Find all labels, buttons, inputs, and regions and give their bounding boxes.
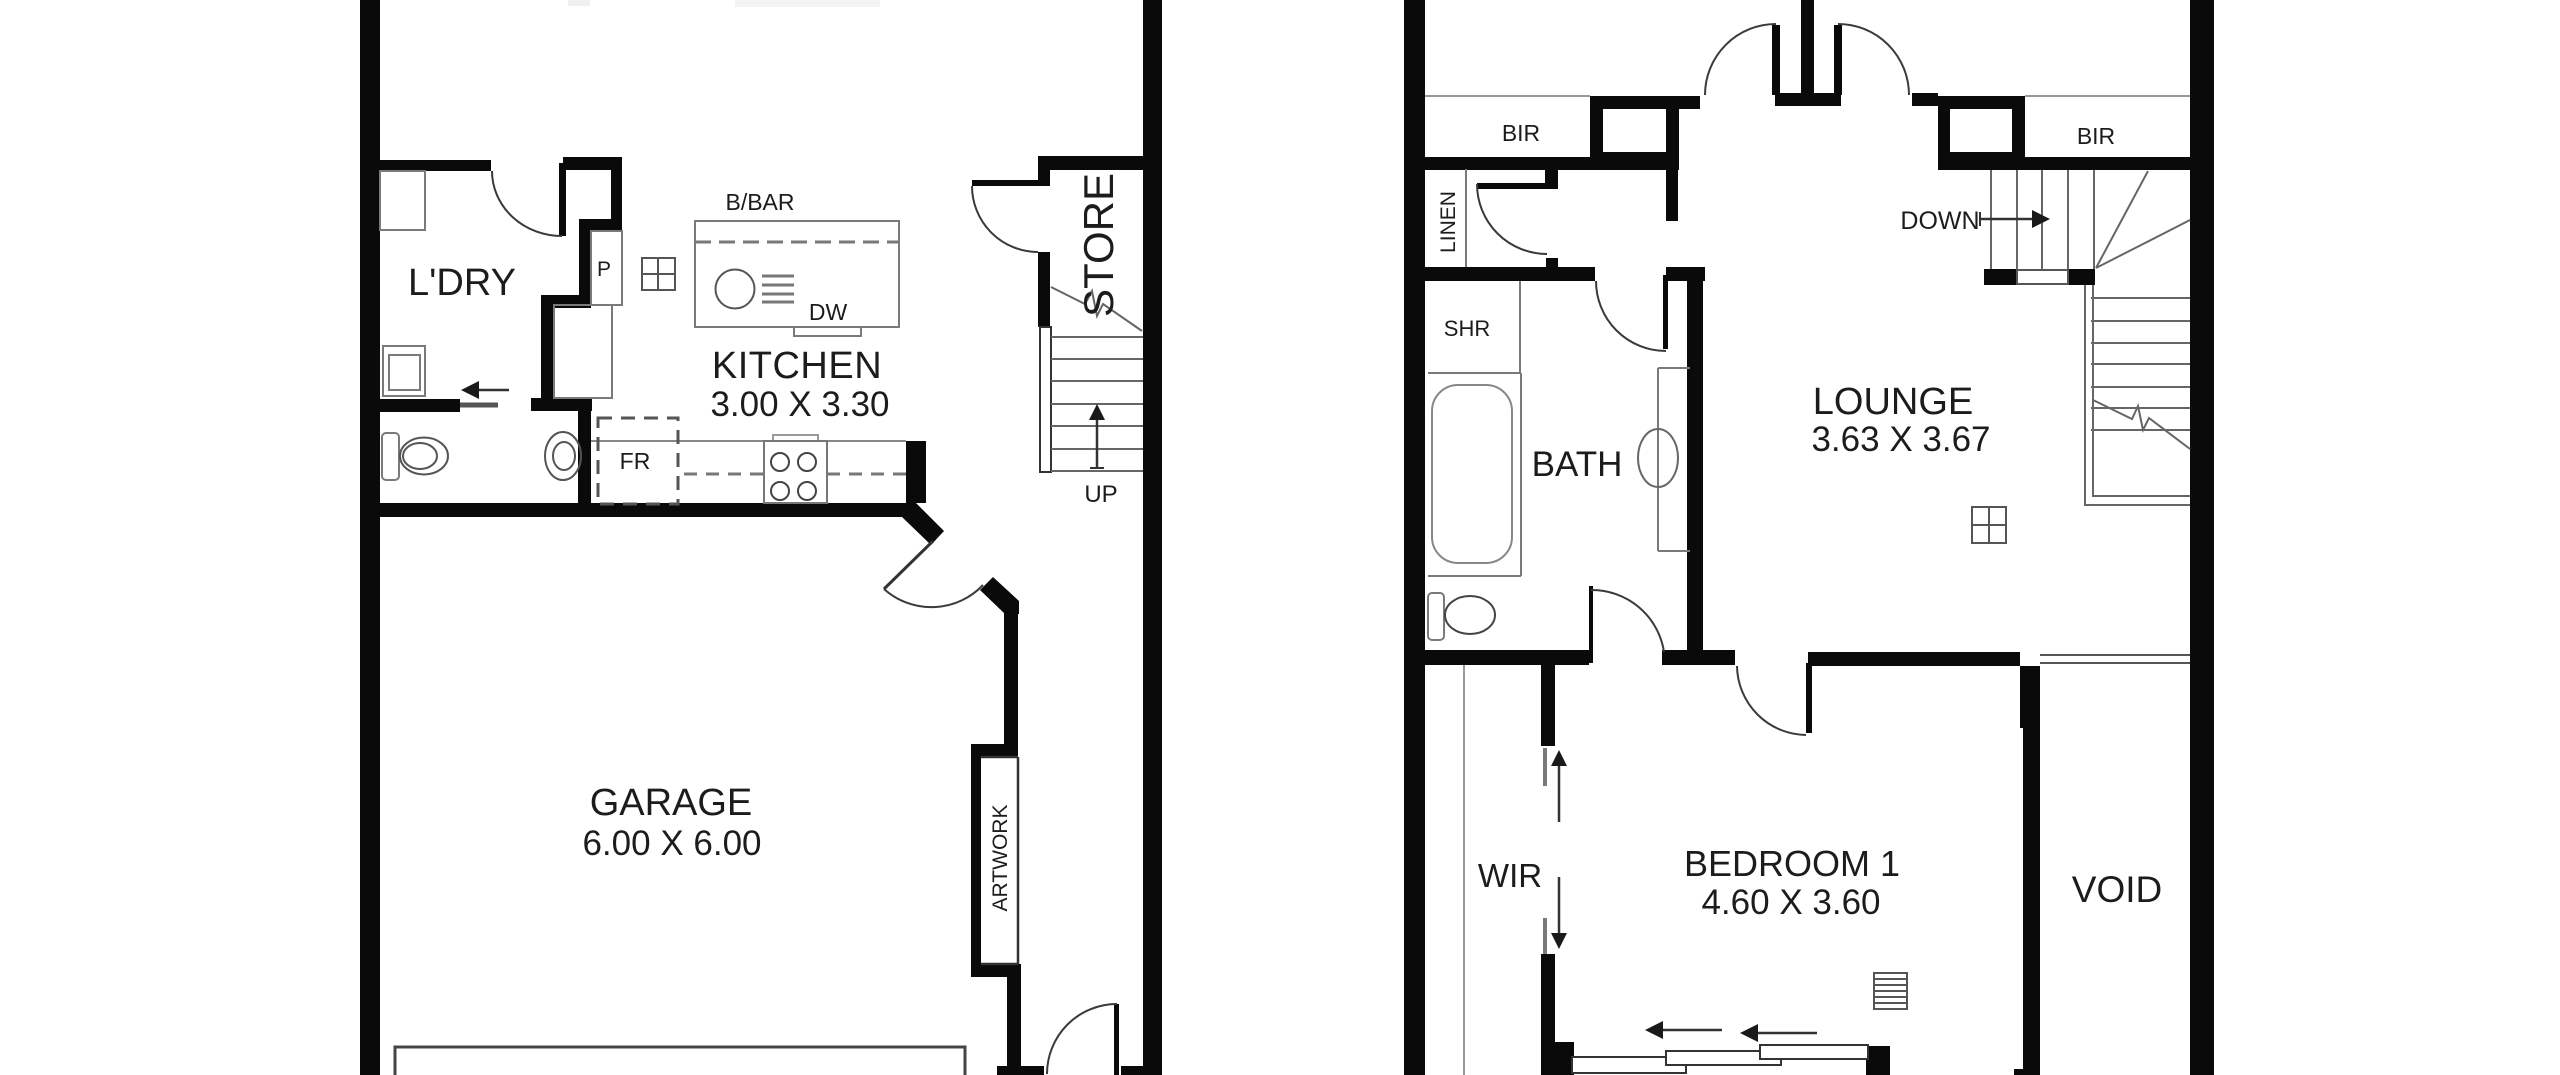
svg-text:DW: DW xyxy=(809,299,848,325)
svg-text:BATH: BATH xyxy=(1532,445,1623,484)
svg-text:BIR: BIR xyxy=(1502,120,1540,146)
svg-text:3.63 X 3.67: 3.63 X 3.67 xyxy=(1811,420,1990,459)
svg-text:P: P xyxy=(597,258,611,281)
svg-text:FR: FR xyxy=(620,448,651,474)
svg-text:6.00 X 6.00: 6.00 X 6.00 xyxy=(582,824,761,863)
svg-text:B/BAR: B/BAR xyxy=(725,189,794,215)
svg-text:UP: UP xyxy=(1084,481,1117,508)
svg-text:KITCHEN: KITCHEN xyxy=(712,345,882,387)
svg-text:ARTWORK: ARTWORK xyxy=(989,805,1012,912)
svg-text:DOWN: DOWN xyxy=(1900,207,1979,235)
svg-text:BEDROOM 1: BEDROOM 1 xyxy=(1684,843,1900,884)
svg-text:GARAGE: GARAGE xyxy=(590,782,753,824)
svg-text:BIR: BIR xyxy=(2077,123,2115,149)
svg-text:SHR: SHR xyxy=(1444,316,1490,341)
svg-text:STORE: STORE xyxy=(1075,173,1122,317)
svg-text:4.60 X 3.60: 4.60 X 3.60 xyxy=(1701,883,1880,922)
svg-text:WIR: WIR xyxy=(1478,857,1542,894)
svg-text:LINEN: LINEN xyxy=(1437,191,1460,253)
svg-text:LOUNGE: LOUNGE xyxy=(1813,381,1973,423)
svg-text:VOID: VOID xyxy=(2072,869,2162,910)
svg-text:3.00 X 3.30: 3.00 X 3.30 xyxy=(710,385,889,424)
svg-text:L'DRY: L'DRY xyxy=(408,262,516,304)
